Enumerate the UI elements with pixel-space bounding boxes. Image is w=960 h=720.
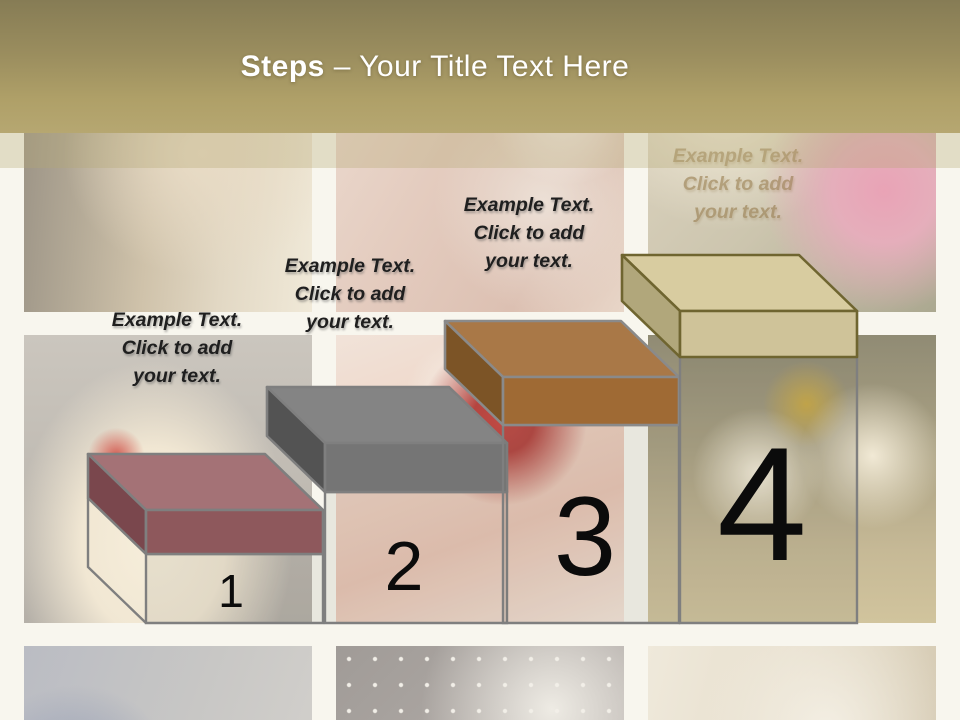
slide-title: Steps – Your Title Text Here: [60, 50, 810, 84]
title-bar-fade: [0, 133, 960, 168]
slide: 1234 Example Text. Click to add your tex…: [0, 0, 960, 720]
step-3-label: Example Text. Click to add your text.: [438, 191, 620, 275]
step-2-label: Example Text. Click to add your text.: [259, 252, 441, 336]
slide-title-keyword: Steps: [241, 50, 325, 83]
slide-title-rest: – Your Title Text Here: [325, 50, 629, 83]
title-bar: Steps – Your Title Text Here: [0, 0, 960, 133]
step-1-label: Example Text. Click to add your text.: [86, 306, 268, 390]
